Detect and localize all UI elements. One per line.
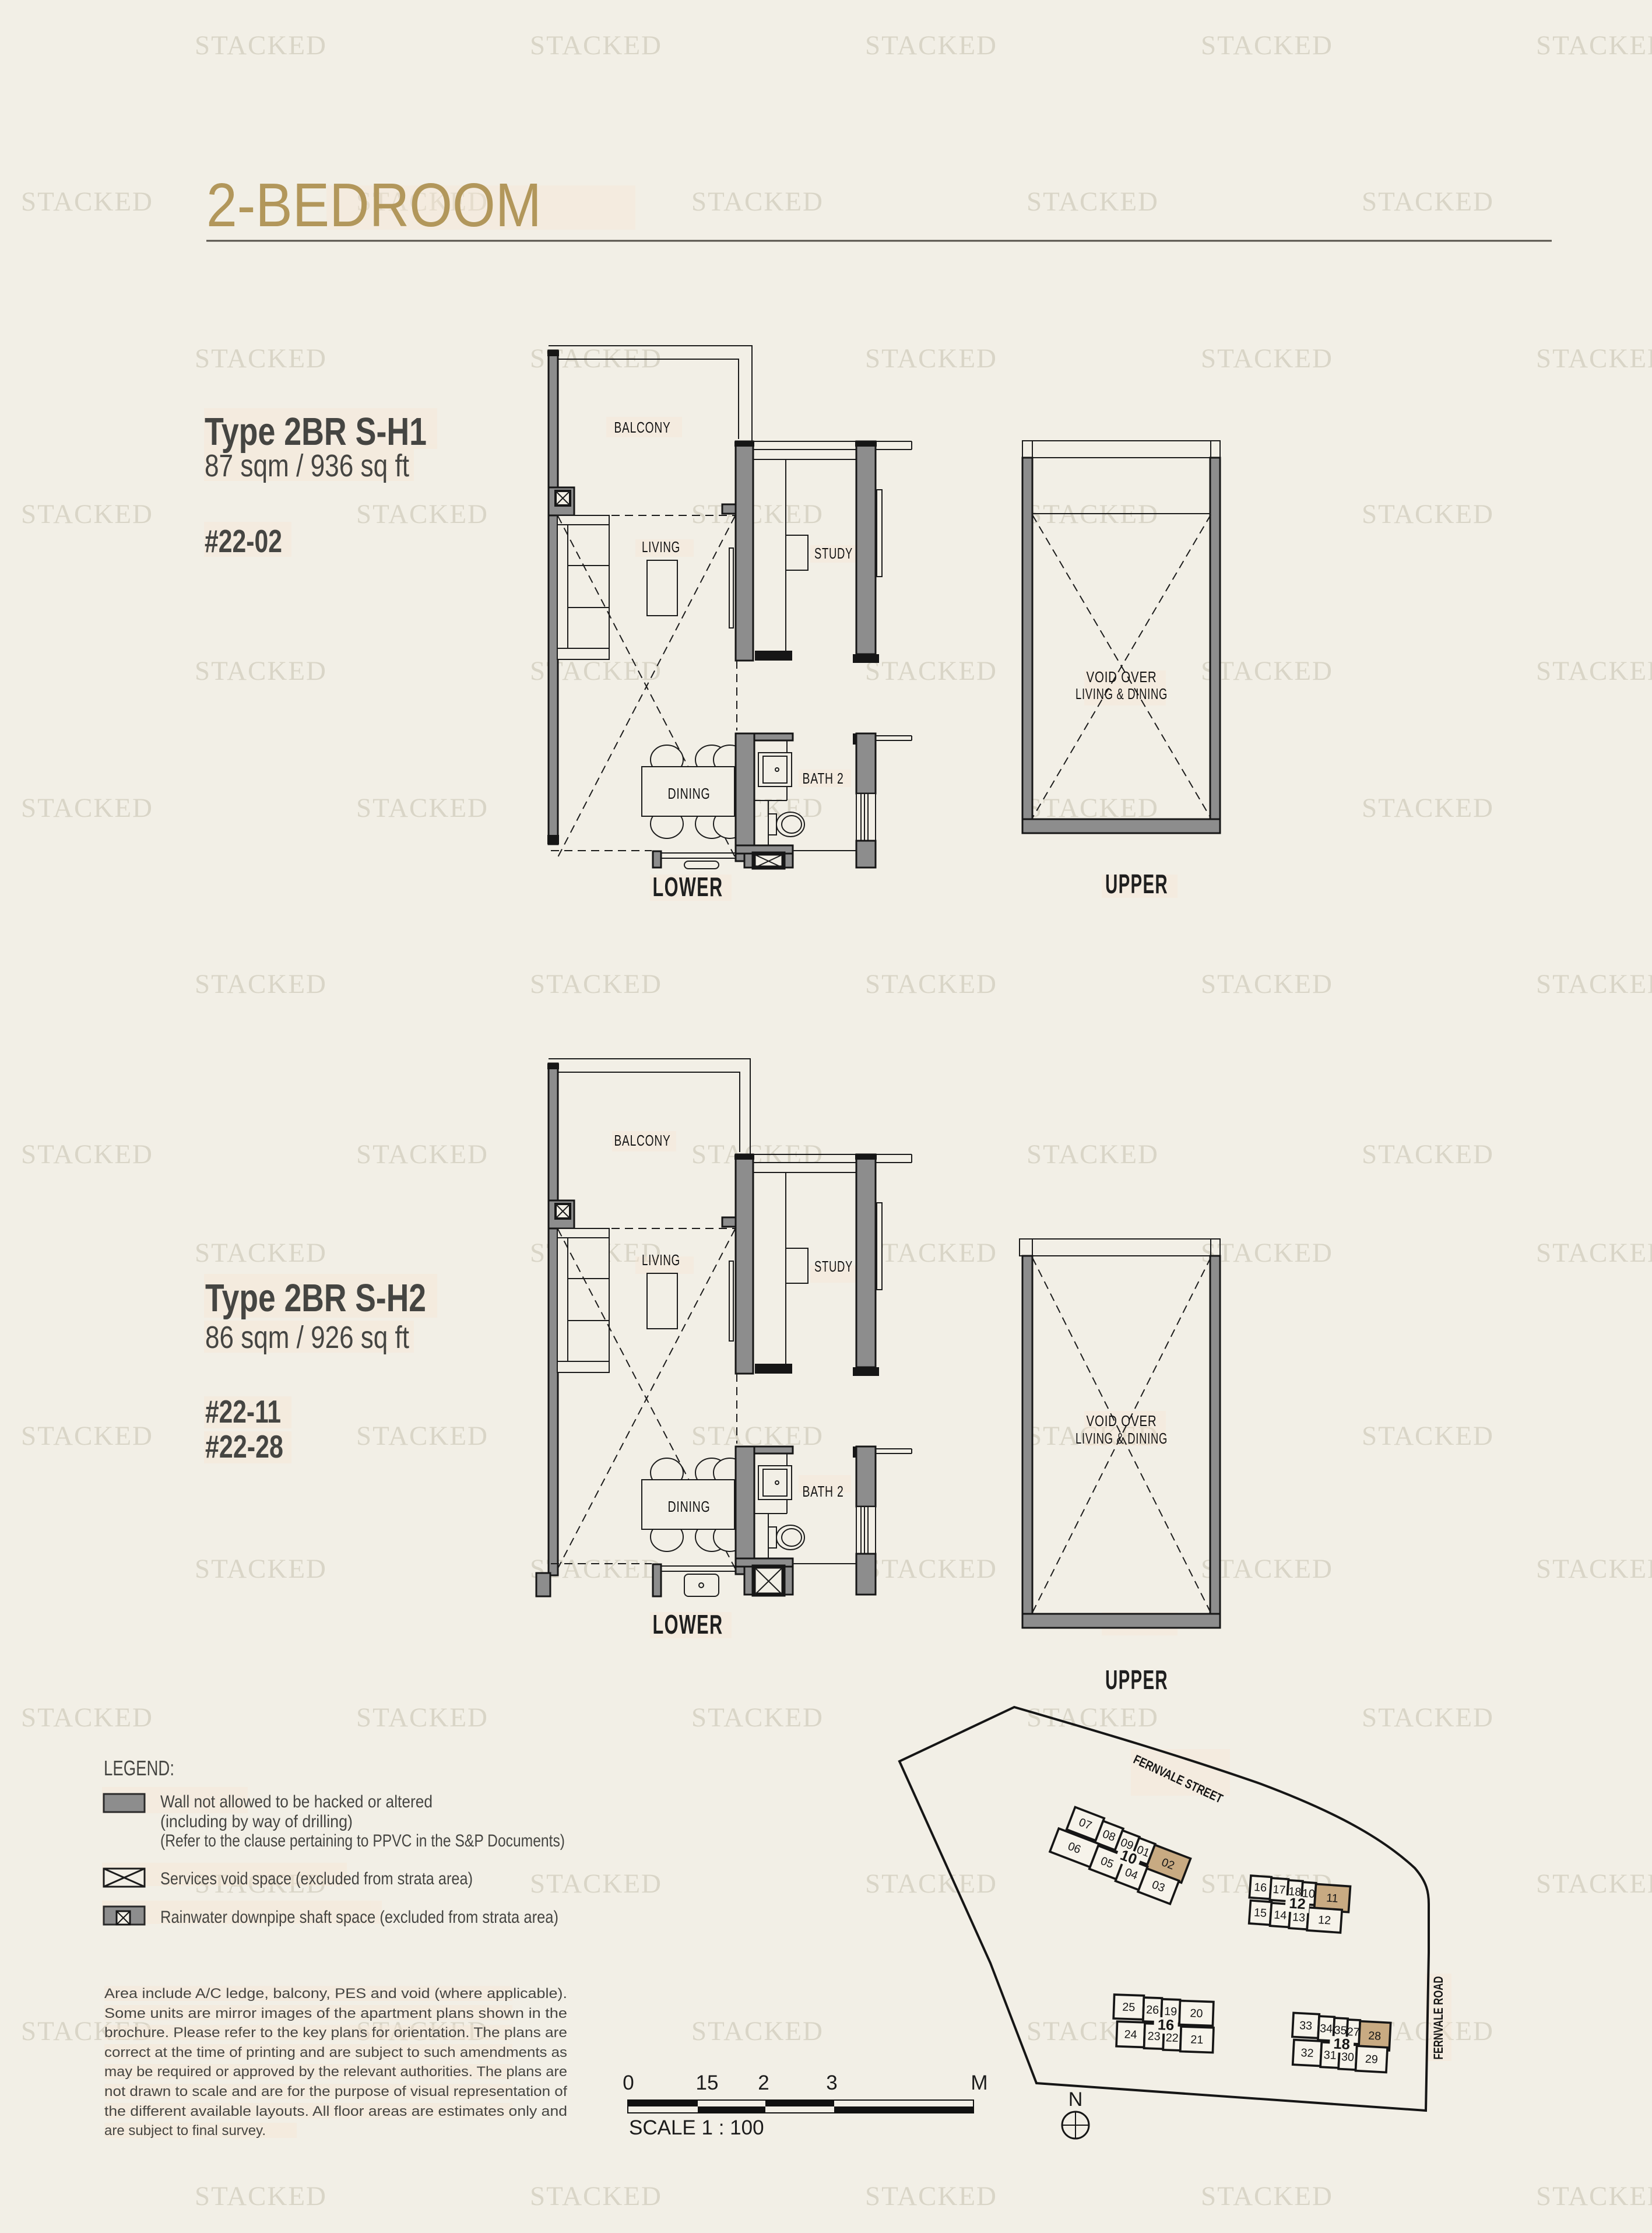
svg-text:0: 0 bbox=[623, 2072, 634, 2094]
svg-text:86 sqm / 926 sq ft: 86 sqm / 926 sq ft bbox=[205, 1320, 409, 1355]
svg-text:M: M bbox=[971, 2072, 987, 2094]
svg-text:BALCONY: BALCONY bbox=[614, 1132, 671, 1149]
svg-text:87 sqm / 936 sq ft: 87 sqm / 936 sq ft bbox=[205, 448, 409, 483]
svg-text:LOWER: LOWER bbox=[653, 872, 723, 902]
svg-text:25: 25 bbox=[1122, 2001, 1136, 2014]
svg-text:SCALE 1 : 100: SCALE 1 : 100 bbox=[629, 2116, 764, 2139]
svg-text:LOWER: LOWER bbox=[653, 1609, 723, 1639]
svg-text:UPPER: UPPER bbox=[1105, 1665, 1168, 1695]
svg-text:20: 20 bbox=[1190, 2007, 1203, 2020]
svg-text:29: 29 bbox=[1365, 2053, 1378, 2066]
svg-text:16: 16 bbox=[1254, 1881, 1267, 1894]
svg-text:2: 2 bbox=[758, 2072, 769, 2094]
svg-text:UPPER: UPPER bbox=[1105, 869, 1168, 899]
svg-text:18: 18 bbox=[1333, 2036, 1351, 2053]
svg-text:LIVING: LIVING bbox=[642, 1251, 680, 1269]
svg-text:34: 34 bbox=[1320, 2022, 1333, 2035]
svg-text:LEGEND:: LEGEND: bbox=[104, 1756, 174, 1780]
svg-text:#22-28: #22-28 bbox=[205, 1428, 283, 1465]
svg-text:BATH 2: BATH 2 bbox=[803, 770, 844, 787]
svg-text:DINING: DINING bbox=[668, 785, 711, 802]
svg-text:#22-02: #22-02 bbox=[205, 523, 282, 559]
svg-text:12: 12 bbox=[1317, 1914, 1331, 1927]
svg-text:are subject to final survey.: are subject to final survey. bbox=[104, 2123, 266, 2139]
svg-text:15: 15 bbox=[696, 2072, 719, 2094]
svg-text:28: 28 bbox=[1368, 2030, 1382, 2043]
svg-text:24: 24 bbox=[1124, 2028, 1137, 2041]
svg-text:VOID OVER: VOID OVER bbox=[1087, 668, 1157, 686]
svg-text:3: 3 bbox=[826, 2072, 837, 2094]
svg-text:16: 16 bbox=[1157, 2017, 1174, 2034]
svg-text:21: 21 bbox=[1190, 2033, 1204, 2046]
svg-text:Some units are mirror images o: Some units are mirror images of the apar… bbox=[104, 2006, 567, 2021]
svg-text:11: 11 bbox=[1326, 1891, 1338, 1905]
svg-text:LIVING & DINING: LIVING & DINING bbox=[1075, 685, 1168, 703]
svg-text:LIVING: LIVING bbox=[642, 538, 680, 556]
svg-text:14: 14 bbox=[1274, 1908, 1287, 1922]
svg-text:Area include A/C ledge, balcon: Area include A/C ledge, balcony, PES and… bbox=[104, 1986, 567, 2002]
svg-text:15: 15 bbox=[1253, 1906, 1267, 1919]
svg-text:26: 26 bbox=[1146, 2003, 1159, 2017]
svg-text:the different available layout: the different available layouts. All flo… bbox=[104, 2104, 567, 2119]
svg-text:Type 2BR S-H2: Type 2BR S-H2 bbox=[205, 1276, 426, 1320]
svg-text:BALCONY: BALCONY bbox=[614, 419, 671, 436]
svg-text:VOID OVER: VOID OVER bbox=[1087, 1412, 1157, 1430]
svg-text:19: 19 bbox=[1164, 2005, 1178, 2018]
svg-text:2-BEDROOM: 2-BEDROOM bbox=[206, 171, 542, 240]
svg-text:Rainwater downpipe shaft space: Rainwater downpipe shaft space (excluded… bbox=[160, 1908, 558, 1927]
svg-text:Wall not allowed to be hacked: Wall not allowed to be hacked or altered bbox=[160, 1792, 433, 1811]
svg-text:DINING: DINING bbox=[668, 1498, 711, 1515]
svg-text:#22-11: #22-11 bbox=[205, 1393, 281, 1430]
svg-text:13: 13 bbox=[1292, 1911, 1305, 1924]
svg-text:35: 35 bbox=[1334, 2024, 1347, 2037]
svg-text:33: 33 bbox=[1299, 2019, 1313, 2032]
svg-text:STUDY: STUDY bbox=[814, 1258, 853, 1275]
svg-text:17: 17 bbox=[1273, 1883, 1286, 1897]
svg-text:12: 12 bbox=[1289, 1895, 1306, 1913]
svg-text:LIVING & DINING: LIVING & DINING bbox=[1075, 1430, 1168, 1447]
svg-text:Type 2BR S-H1: Type 2BR S-H1 bbox=[205, 410, 427, 454]
svg-text:Services void space (excluded: Services void space (excluded from strat… bbox=[160, 1869, 473, 1888]
svg-text:STUDY: STUDY bbox=[814, 545, 853, 562]
svg-text:not drawn to scale and are for: not drawn to scale and are for the purpo… bbox=[104, 2084, 567, 2099]
svg-text:N: N bbox=[1068, 2088, 1083, 2111]
svg-text:correct at the time of printin: correct at the time of printing and are … bbox=[104, 2045, 567, 2060]
svg-text:BATH 2: BATH 2 bbox=[803, 1483, 844, 1500]
svg-text:(including by way of drilling): (including by way of drilling) bbox=[160, 1812, 353, 1831]
svg-text:32: 32 bbox=[1300, 2046, 1314, 2060]
svg-text:brochure. Please refer to the: brochure. Please refer to the key plans … bbox=[104, 2025, 567, 2041]
svg-text:FERNVALE ROAD: FERNVALE ROAD bbox=[1431, 1976, 1446, 2060]
svg-text:may be required or approved by: may be required or approved by the relev… bbox=[104, 2064, 567, 2080]
svg-text:(Refer to the clause pertainin: (Refer to the clause pertaining to PPVC … bbox=[160, 1831, 565, 1851]
